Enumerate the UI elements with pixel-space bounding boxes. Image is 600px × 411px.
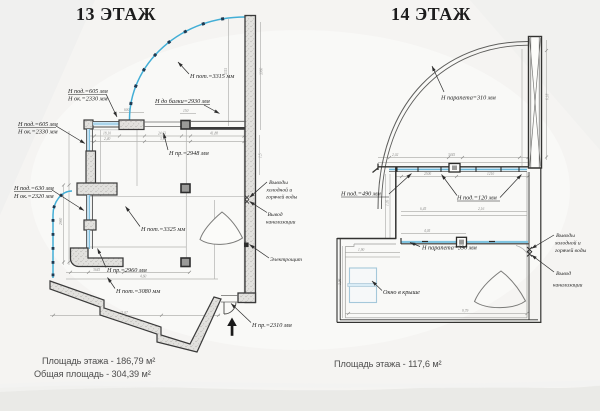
- svg-text:Н под.=630 мм: Н под.=630 мм: [13, 185, 54, 192]
- svg-text:холодной и: холодной и: [554, 240, 581, 247]
- svg-text:Н пот.=3325 мм: Н пот.=3325 мм: [140, 226, 185, 233]
- svg-text:Площадь этажа - 117,6 м²: Площадь этажа - 117,6 м²: [334, 359, 442, 369]
- svg-text:3645: 3645: [93, 268, 100, 272]
- svg-text:Н под.=120 мм: Н под.=120 мм: [456, 195, 497, 202]
- svg-text:Н пр.=2310 мм: Н пр.=2310 мм: [251, 322, 292, 329]
- svg-text:1210: 1210: [487, 172, 494, 176]
- svg-text:Н пот.=3315 мм: Н пот.=3315 мм: [189, 73, 234, 80]
- svg-text:2960: 2960: [59, 218, 63, 225]
- svg-text:горячей воды: горячей воды: [555, 247, 587, 254]
- svg-text:3360: 3360: [260, 68, 264, 75]
- svg-text:Н пр.=2960 мм: Н пр.=2960 мм: [106, 267, 147, 274]
- svg-text:канализации: канализации: [553, 283, 583, 289]
- svg-text:Н пр.=2948 мм: Н пр.=2948 мм: [168, 150, 209, 157]
- svg-text:Окно в крыше: Окно в крыше: [383, 289, 420, 296]
- svg-text:14 ЭТАЖ: 14 ЭТАЖ: [391, 4, 471, 24]
- svg-text:Н до балки=2930 мм: Н до балки=2930 мм: [154, 98, 210, 105]
- svg-text:Площадь этажа - 186,79 м²: Площадь этажа - 186,79 м²: [42, 356, 155, 366]
- svg-text:Н ок.=2330 мм: Н ок.=2330 мм: [17, 129, 58, 136]
- svg-text:Электрощит: Электрощит: [270, 257, 302, 263]
- svg-text:Н пот.=3080 мм: Н пот.=3080 мм: [115, 288, 160, 295]
- svg-text:Н парапета=310 мм: Н парапета=310 мм: [440, 95, 496, 102]
- svg-text:Вывод: Вывод: [268, 211, 283, 218]
- svg-text:13 ЭТАЖ: 13 ЭТАЖ: [76, 4, 156, 24]
- svg-text:горячей воды: горячей воды: [266, 194, 298, 201]
- svg-text:3445: 3445: [448, 153, 455, 157]
- svg-text:Вывод: Вывод: [556, 270, 571, 277]
- svg-text:Общая площадь - 304,39 м²: Общая площадь - 304,39 м²: [34, 369, 151, 379]
- svg-text:канализации: канализации: [266, 219, 296, 225]
- svg-text:Н под.=605 мм: Н под.=605 мм: [67, 88, 108, 95]
- svg-text:Н под.=605 мм: Н под.=605 мм: [17, 121, 58, 128]
- svg-text:Н ок.=2320 мм: Н ок.=2320 мм: [13, 193, 54, 200]
- svg-text:2500: 2500: [424, 172, 431, 176]
- svg-text:Н под.=490 мм: Н под.=490 мм: [340, 191, 381, 198]
- svg-text:Выводы: Выводы: [556, 232, 575, 239]
- svg-text:Н ок.=2330 мм: Н ок.=2330 мм: [67, 96, 108, 103]
- svg-text:150: 150: [183, 109, 189, 113]
- svg-text:холодной и: холодной и: [266, 186, 293, 193]
- svg-text:Н парапета=390 мм: Н парапета=390 мм: [421, 245, 477, 252]
- svg-text:600: 600: [124, 108, 130, 112]
- svg-text:Выводы: Выводы: [269, 179, 288, 186]
